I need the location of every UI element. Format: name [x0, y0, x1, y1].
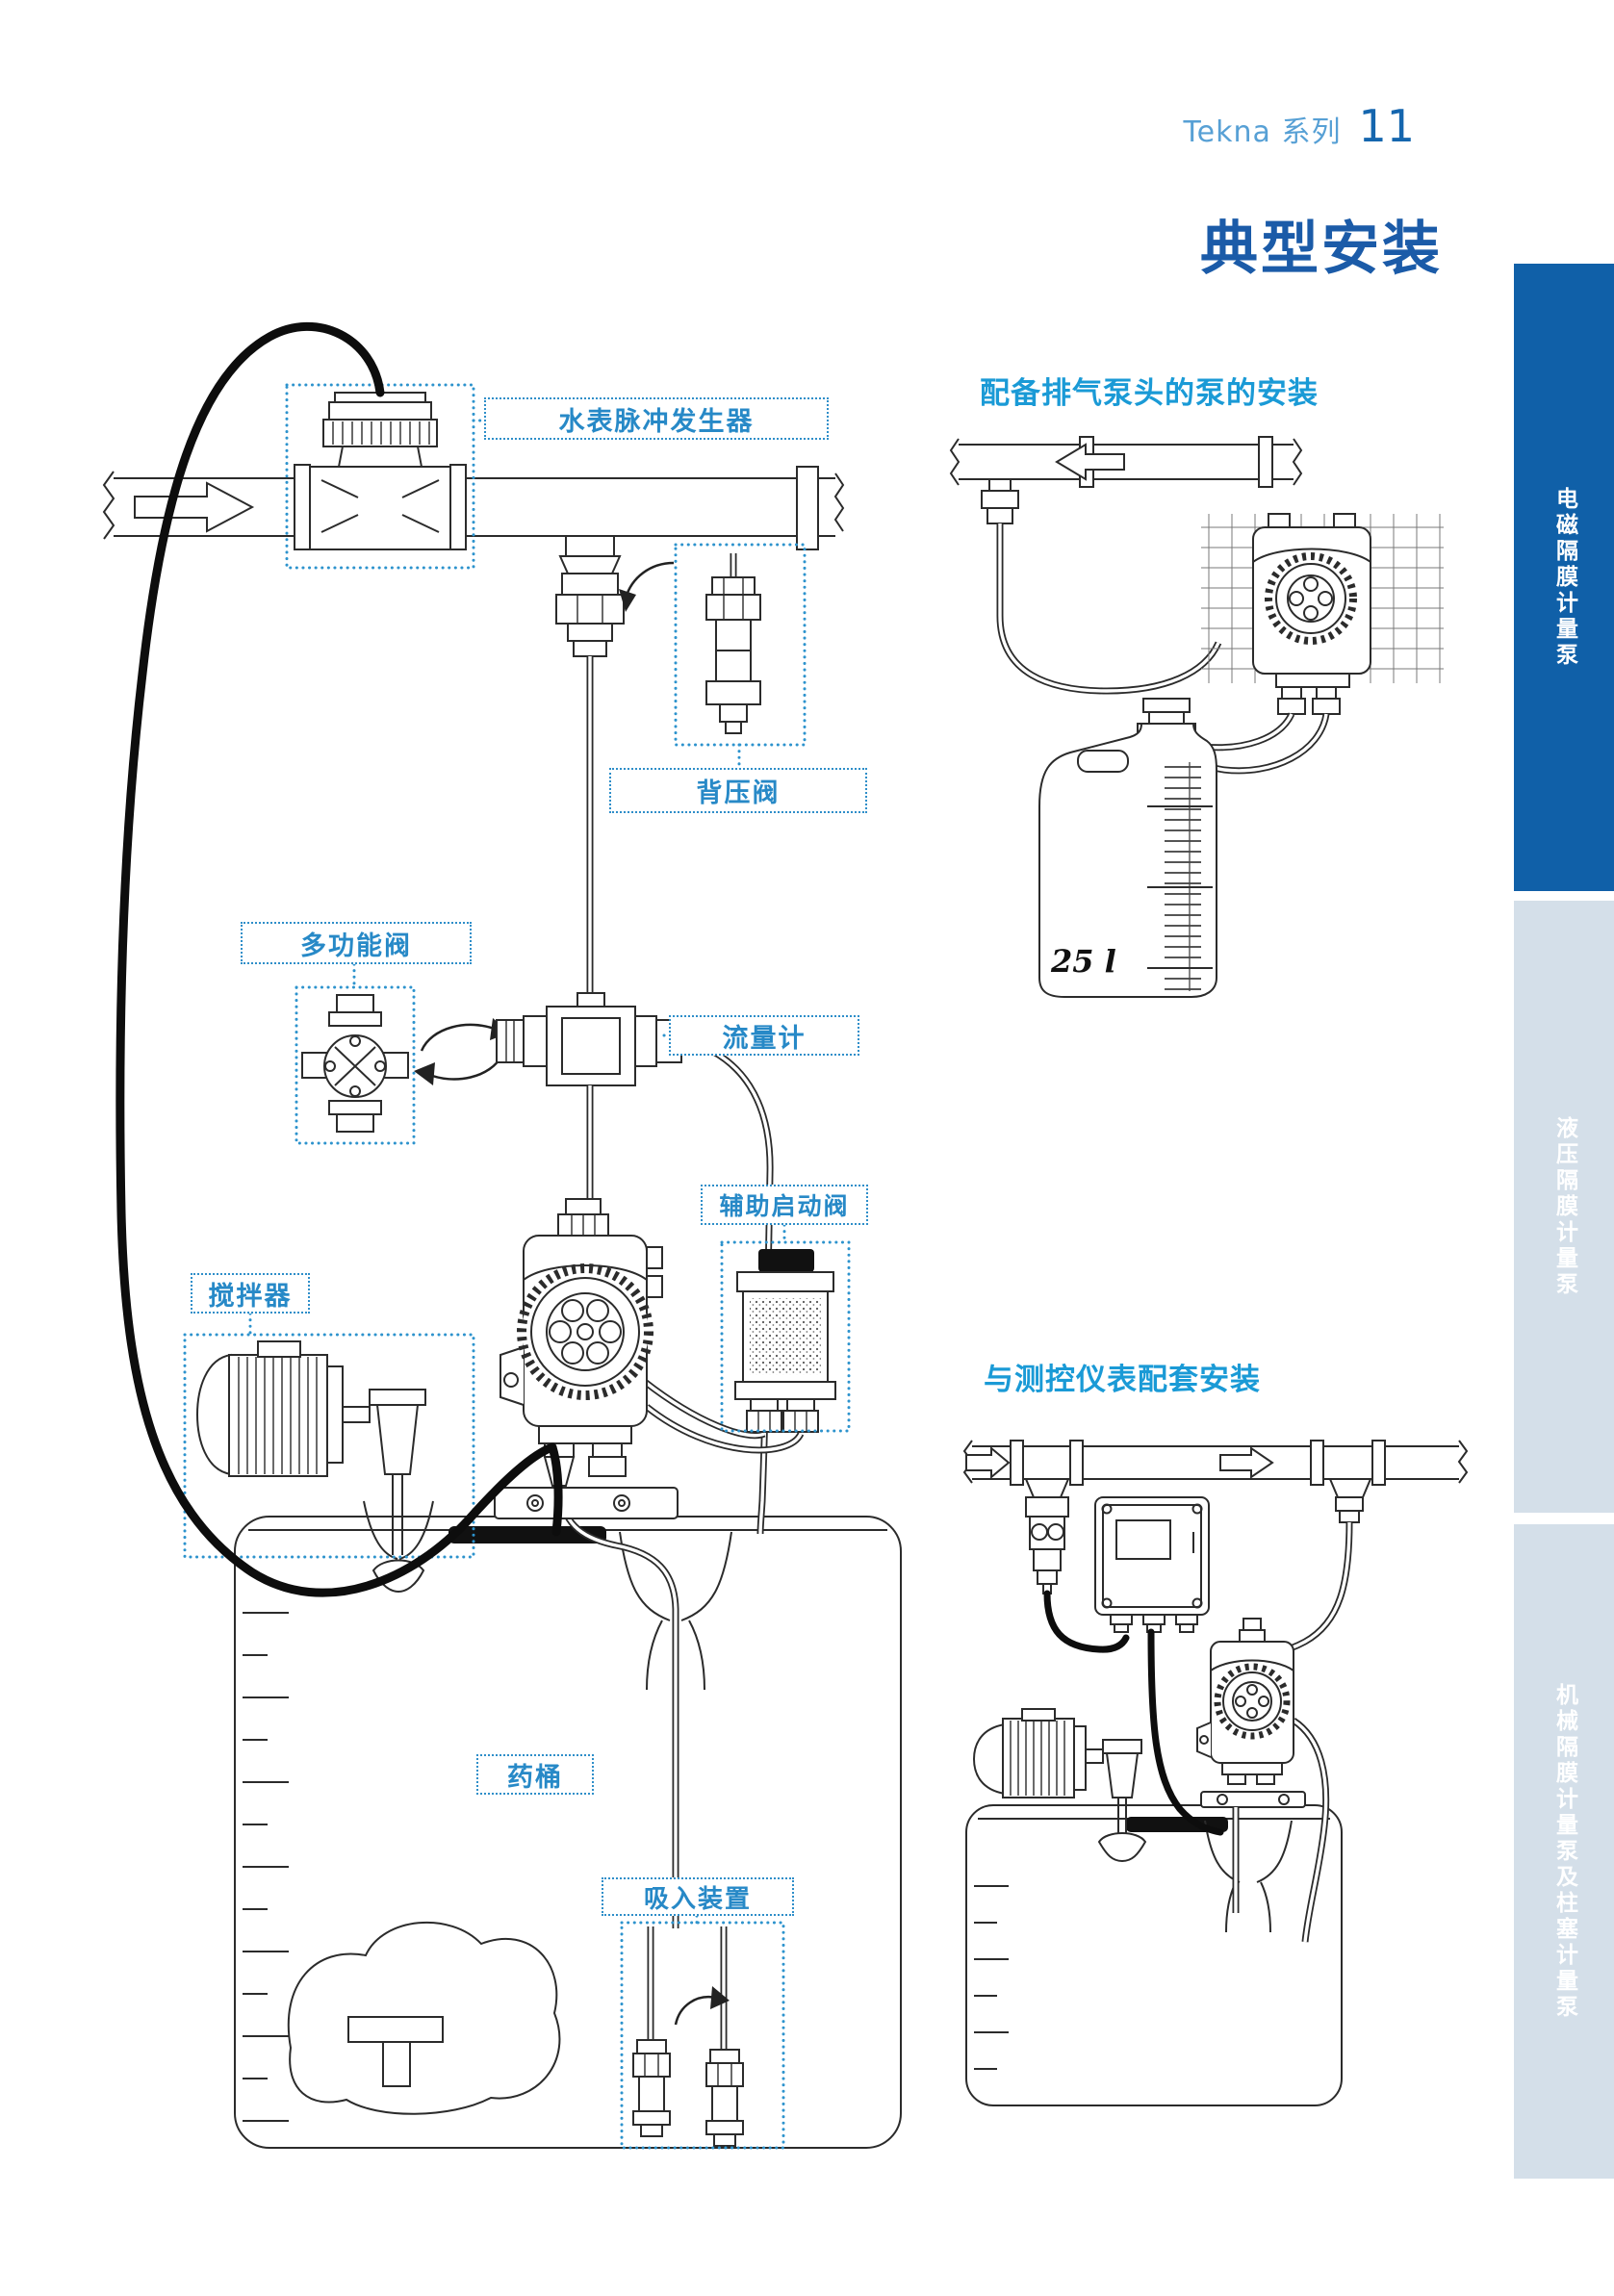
- label-auxiliary-start-valve: 辅助启动阀: [701, 1185, 868, 1225]
- auxiliary-start-valve-drawing: [735, 1249, 835, 1432]
- label-back-pressure-valve: 背压阀: [609, 768, 867, 813]
- tank-capacity-label: 25 l: [1051, 943, 1116, 980]
- label-chemical-tank: 药桶: [476, 1754, 594, 1795]
- flow-arrow-1: [966, 1448, 1009, 1477]
- label-water-meter: 水表脉冲发生器: [484, 397, 829, 440]
- instrument-pipe: [964, 1441, 1467, 1497]
- degassing-pipe: [951, 437, 1301, 487]
- degassing-pump-drawing: [1253, 514, 1371, 714]
- instrument-injection: [1255, 1497, 1363, 1654]
- injection-tee-drawing: [556, 536, 624, 996]
- water-meter-drawing: [295, 393, 466, 549]
- flow-meter-drawing: [497, 993, 681, 1214]
- degassing-installation-diagram: [951, 437, 1444, 997]
- back-pressure-valve-drawing: [619, 553, 760, 733]
- instrument-heading: 与测控仪表配套安装: [984, 1355, 1261, 1398]
- label-multifunction-valve: 多功能阀: [241, 922, 472, 964]
- page-header: Tekna 系列 11: [1183, 100, 1415, 152]
- chemical-tank-drawing: [235, 1517, 901, 2148]
- can-graduations: [1161, 764, 1207, 991]
- instrument-tank-drawing: [966, 1805, 1342, 2105]
- series-label: Tekna 系列: [1183, 108, 1341, 150]
- degassing-heading: 配备排气泵头的泵的安装: [980, 369, 1319, 412]
- flow-arrow: [135, 483, 252, 531]
- flow-arrow-2: [1220, 1448, 1272, 1477]
- multifunction-valve-drawing: [302, 995, 408, 1132]
- degassing-injection: [982, 479, 1218, 691]
- label-flow-meter: 流量计: [669, 1015, 859, 1056]
- page-number: 11: [1358, 100, 1415, 152]
- main-installation-diagram: [104, 326, 901, 2148]
- sidebar-tab-label: 机械隔膜计量泵及柱塞计量泵: [1553, 1683, 1576, 2021]
- sidebar-tab-label: 液压隔膜计量泵: [1553, 1116, 1576, 1298]
- catalog-page: Tekna 系列 11 典型安装 配备排气泵头的泵的安装 与测控仪表配套安装 水…: [0, 0, 1614, 2296]
- instrument-installation-diagram: [964, 1441, 1467, 2105]
- sidebar-tab-label: 电磁隔膜计量泵: [1553, 487, 1576, 669]
- diagram-artwork: [0, 0, 1614, 2296]
- sidebar-tab-solenoid: 电磁隔膜计量泵: [1514, 264, 1614, 891]
- sidebar-tab-mechanical: 机械隔膜计量泵及柱塞计量泵: [1514, 1524, 1614, 2179]
- sidebar-tab-hydraulic: 液压隔膜计量泵: [1514, 901, 1614, 1513]
- label-agitator: 搅拌器: [191, 1273, 310, 1314]
- page-title: 典型安装: [1200, 202, 1443, 286]
- label-suction-device: 吸入装置: [602, 1877, 794, 1916]
